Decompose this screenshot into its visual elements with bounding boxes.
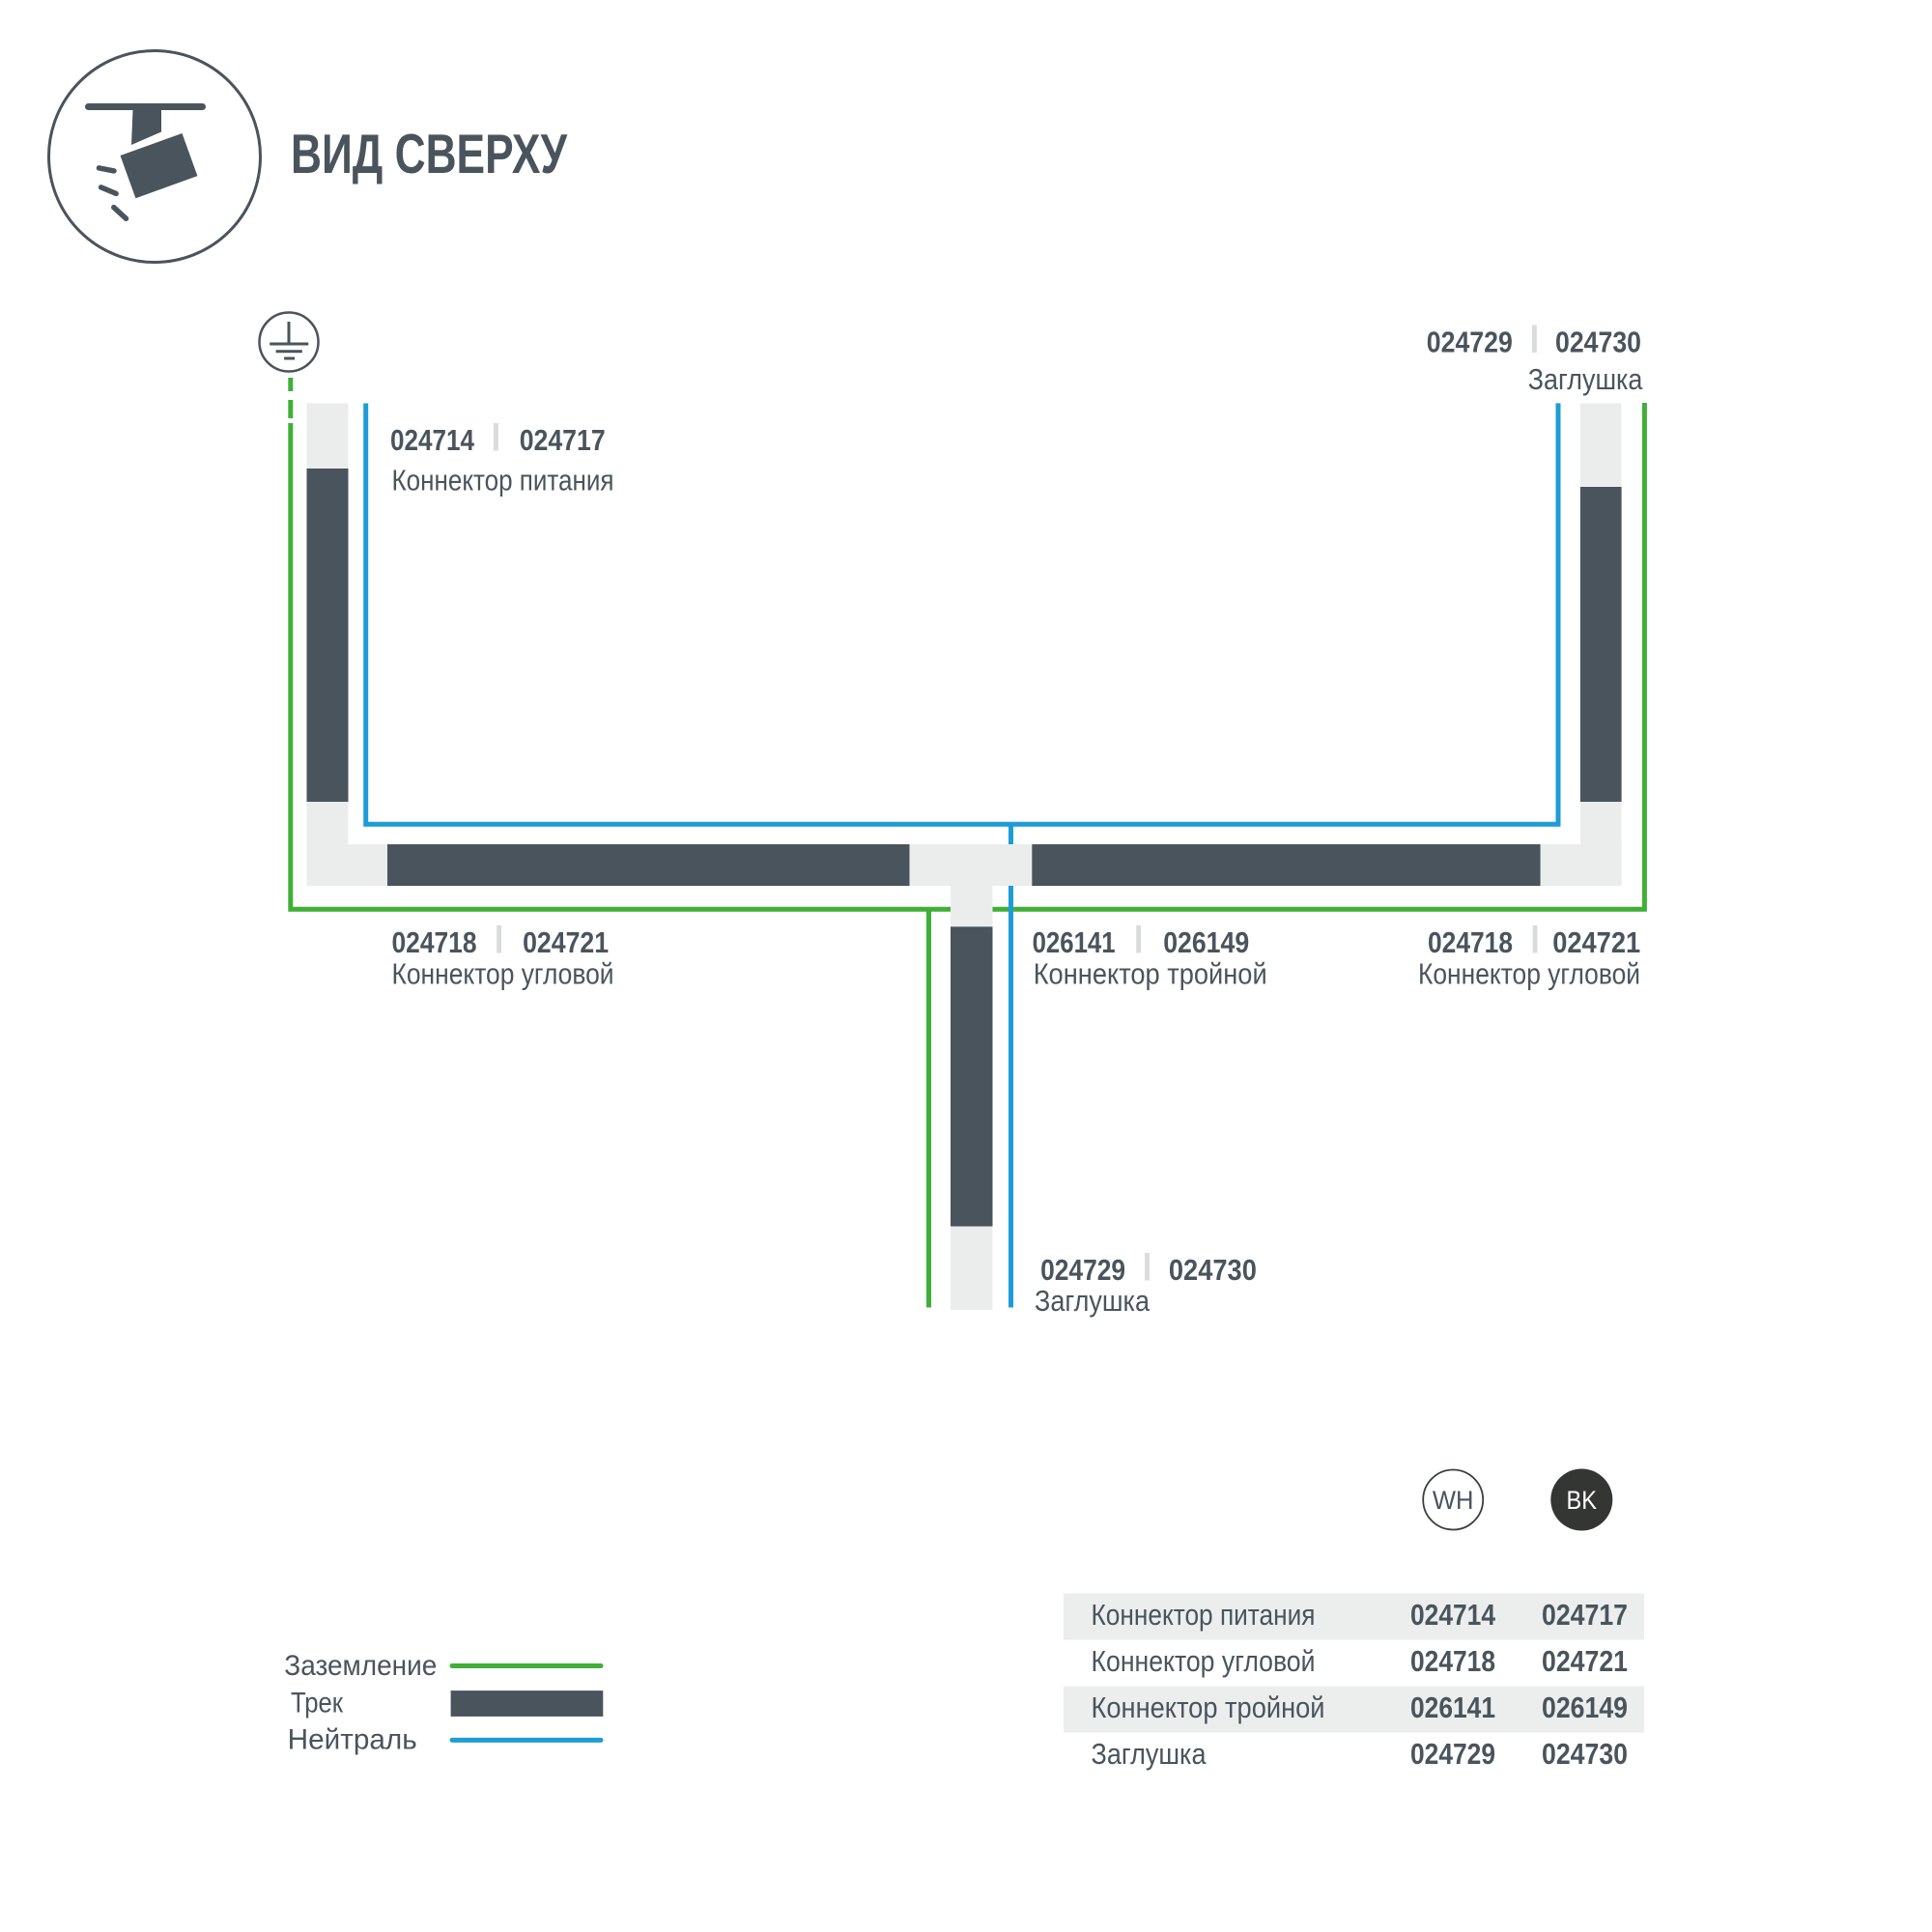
svg-text:Коннектор угловой: Коннектор угловой xyxy=(1418,956,1640,990)
svg-text:Нейтраль: Нейтраль xyxy=(288,1724,417,1756)
svg-text:Коннектор тройной: Коннектор тройной xyxy=(1034,956,1267,990)
svg-text:BK: BK xyxy=(1567,1486,1598,1515)
svg-text:026149: 026149 xyxy=(1542,1690,1628,1724)
svg-text:Коннектор питания: Коннектор питания xyxy=(392,464,614,497)
svg-text:Коннектор угловой: Коннектор угловой xyxy=(1092,1644,1316,1678)
svg-text:Коннектор питания: Коннектор питания xyxy=(1092,1598,1316,1632)
svg-text:024717: 024717 xyxy=(1542,1598,1628,1632)
svg-text:024717: 024717 xyxy=(520,423,606,457)
svg-text:ВИД СВЕРХУ: ВИД СВЕРХУ xyxy=(291,124,568,185)
svg-text:026141: 026141 xyxy=(1410,1690,1495,1724)
svg-text:024721: 024721 xyxy=(1542,1644,1628,1678)
svg-text:024729: 024729 xyxy=(1040,1253,1125,1287)
svg-text:026149: 026149 xyxy=(1163,925,1249,959)
svg-text:024729: 024729 xyxy=(1410,1737,1495,1771)
svg-text:Заглушка: Заглушка xyxy=(1092,1737,1207,1771)
svg-text:024721: 024721 xyxy=(1552,925,1640,959)
svg-text:Коннектор угловой: Коннектор угловой xyxy=(392,956,614,990)
svg-text:024730: 024730 xyxy=(1169,1253,1257,1287)
svg-text:024730: 024730 xyxy=(1555,326,1641,359)
svg-text:WH: WH xyxy=(1433,1486,1474,1515)
svg-text:024718: 024718 xyxy=(1428,925,1513,959)
svg-text:024721: 024721 xyxy=(523,925,609,959)
svg-text:Заглушка: Заглушка xyxy=(1528,362,1643,396)
svg-text:Заземление: Заземление xyxy=(284,1650,437,1682)
svg-text:Заглушка: Заглушка xyxy=(1035,1284,1151,1318)
svg-text:Коннектор тройной: Коннектор тройной xyxy=(1092,1690,1325,1724)
svg-text:Трек: Трек xyxy=(291,1687,344,1719)
svg-text:024718: 024718 xyxy=(392,925,477,959)
svg-text:024730: 024730 xyxy=(1542,1737,1628,1771)
svg-text:024718: 024718 xyxy=(1410,1644,1495,1678)
svg-text:024729: 024729 xyxy=(1427,326,1513,359)
svg-text:026141: 026141 xyxy=(1033,925,1116,959)
svg-text:024714: 024714 xyxy=(1410,1598,1496,1632)
svg-text:024714: 024714 xyxy=(390,423,475,457)
